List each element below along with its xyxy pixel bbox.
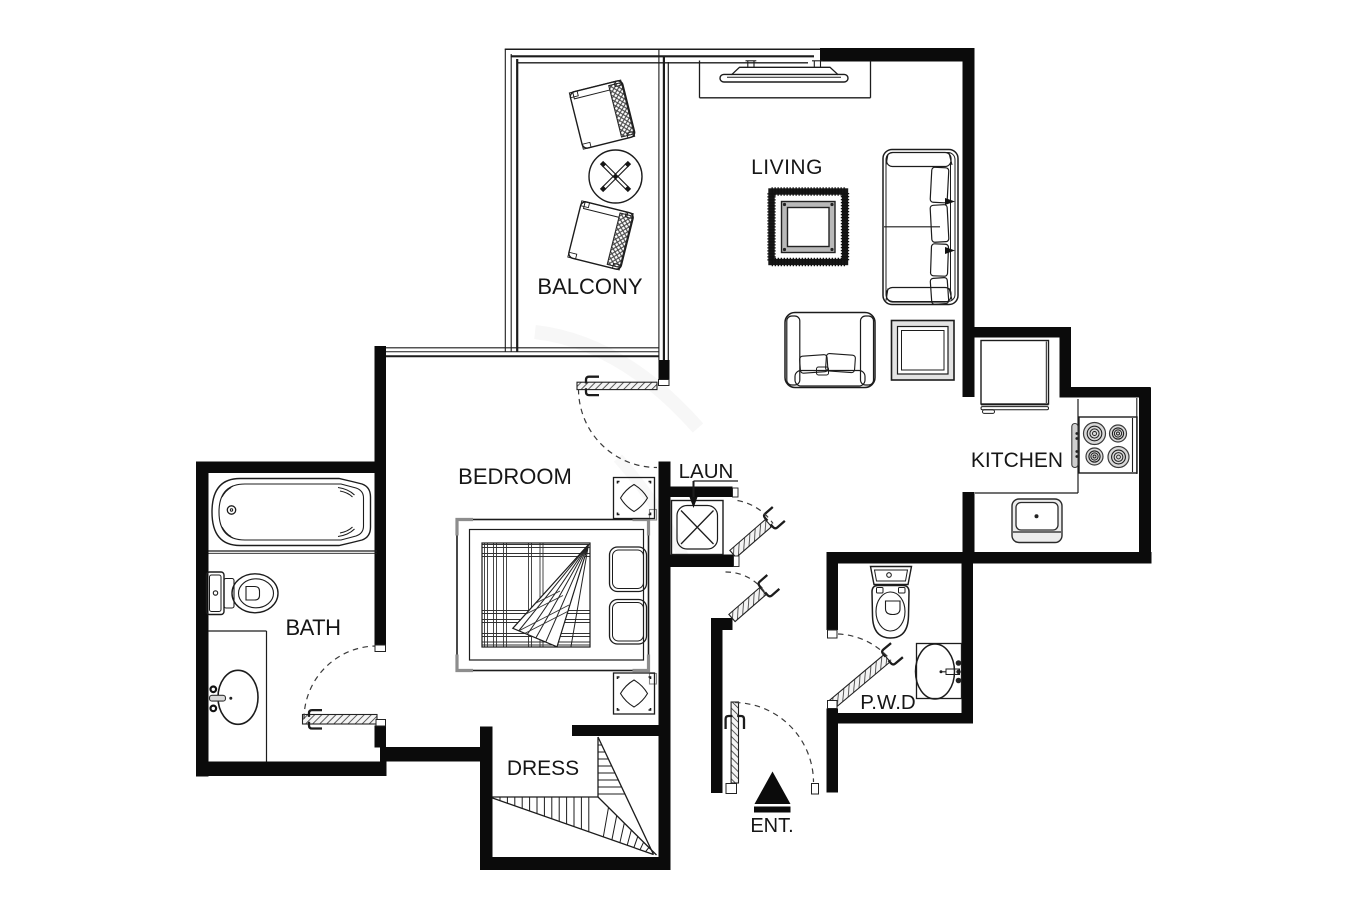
- svg-text:LAUN: LAUN: [679, 460, 734, 483]
- svg-text:LIVING: LIVING: [751, 156, 823, 179]
- svg-text:BEDROOM: BEDROOM: [458, 464, 572, 489]
- svg-text:KITCHEN: KITCHEN: [971, 449, 1063, 472]
- svg-text:BALCONY: BALCONY: [537, 274, 642, 299]
- svg-text:ENT.: ENT.: [750, 815, 793, 837]
- svg-text:P.W.D: P.W.D: [860, 691, 915, 714]
- svg-text:DRESS: DRESS: [507, 757, 579, 780]
- svg-text:BATH: BATH: [285, 615, 340, 640]
